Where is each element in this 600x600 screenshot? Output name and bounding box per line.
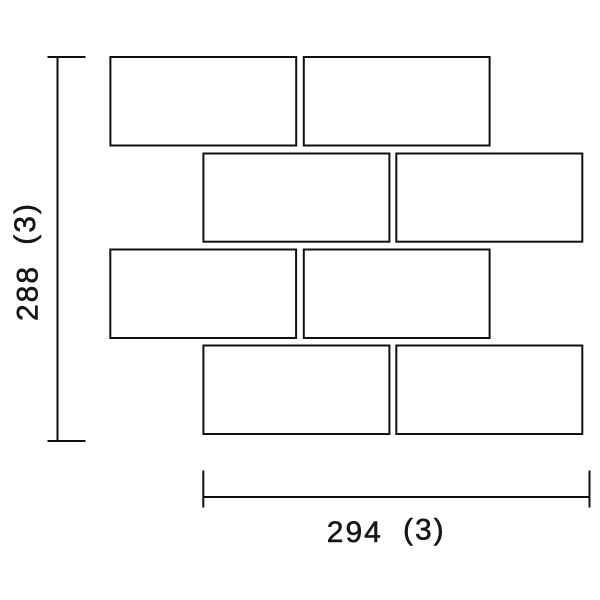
svg-text:288: 288 [12, 265, 45, 321]
svg-text:294: 294 [327, 516, 383, 549]
svg-text:(3): (3) [9, 202, 42, 245]
svg-text:(3): (3) [403, 514, 446, 547]
